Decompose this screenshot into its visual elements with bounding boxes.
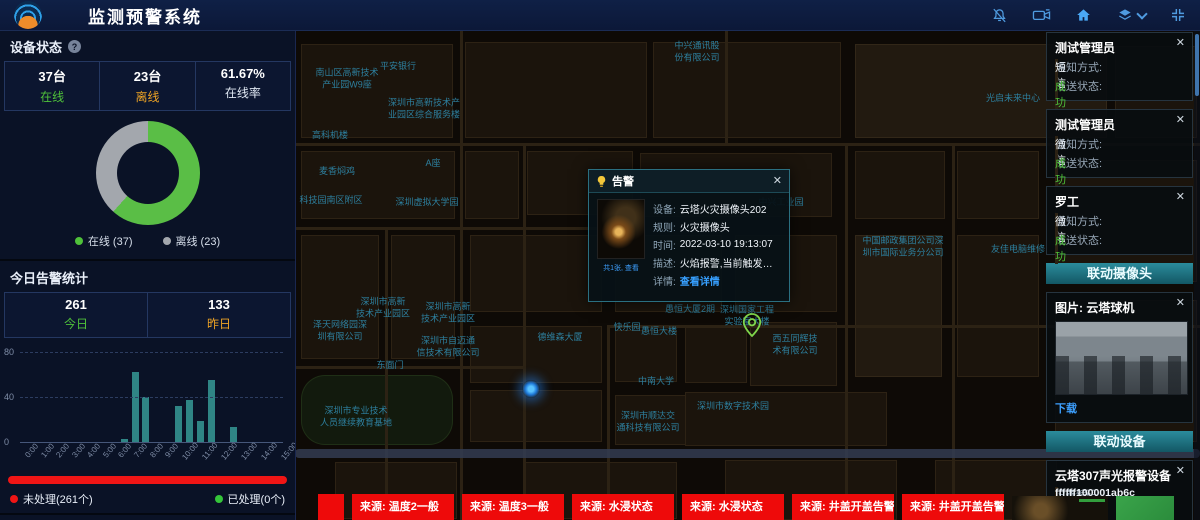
x-tick-label: 15:00 xyxy=(280,441,296,462)
notify-name: 测试管理员 xyxy=(1055,39,1184,56)
bar-plot xyxy=(20,352,283,443)
notify-method: 通知方式:短信 xyxy=(1055,59,1184,75)
map-label: 科技园南区附区 xyxy=(299,195,362,207)
map-building xyxy=(855,151,945,219)
map-label: 西五同辉技 术有限公司 xyxy=(772,333,817,356)
month-alarms-header: 本月告警统计 xyxy=(0,515,295,520)
video-camera-icon[interactable] xyxy=(1032,7,1051,23)
map-location-pin-icon[interactable] xyxy=(741,312,763,343)
notify-method: 通知方式:微信 xyxy=(1055,136,1184,152)
bar-xlabels: 0:001:002:003:004:005:006:007:008:009:00… xyxy=(20,445,283,454)
map-label: 德维森大厦 xyxy=(537,332,582,344)
home-icon[interactable] xyxy=(1075,7,1092,23)
x-tick-label: 2:00 xyxy=(54,442,71,460)
alarm-snapshot-thumbnail[interactable] xyxy=(1012,496,1108,520)
x-tick-label: 1:00 xyxy=(39,442,56,460)
view-detail-link[interactable]: 查看详情 xyxy=(680,273,720,288)
stat-today: 261 今日 xyxy=(5,293,147,337)
alarm-tile[interactable]: 来源: 井盖开盖告警 xyxy=(792,494,894,520)
layers-icon[interactable] xyxy=(1116,7,1146,23)
close-icon[interactable]: ✕ xyxy=(1176,38,1185,49)
legend-unprocessed: 未处理(261个) xyxy=(10,491,93,507)
alarm-ticker: 来源: 温度2一般来源: 温度3一般来源: 水浸状态来源: 水浸状态来源: 井盖… xyxy=(295,490,1200,520)
legend-processed: 已处理(0个) xyxy=(215,491,285,507)
unprocessed-progress-bar xyxy=(8,476,287,484)
download-link[interactable]: 下载 xyxy=(1055,400,1184,416)
chevron-down-icon xyxy=(1136,8,1147,19)
map-building xyxy=(957,151,1039,219)
x-tick-label: 4:00 xyxy=(86,442,103,460)
notification-card: ✕ 罗工 通知方式:微信 推送状态:成功 xyxy=(1046,186,1193,255)
device-status-title: 设备状态 xyxy=(10,37,62,56)
map-label: 愚恒大厦2期 xyxy=(665,304,715,316)
today-alarms-header: 今日告警统计 xyxy=(0,261,295,292)
map-road xyxy=(295,366,523,369)
map-label: 快乐园 xyxy=(613,322,640,334)
fullscreen-exit-icon[interactable] xyxy=(1170,7,1186,23)
map-label: A座 xyxy=(425,158,440,170)
map-label: 高科机楼 xyxy=(312,130,348,142)
x-tick-label: 10:00 xyxy=(180,441,200,462)
field-description: 描述:火焰报警,当前触发值为... xyxy=(653,253,781,271)
x-tick-label: 6:00 xyxy=(117,442,134,460)
x-tick-label: 5:00 xyxy=(101,442,118,460)
notification-card: ✕ 测试管理员 通知方式:短信 推送状态:成功 xyxy=(1046,32,1193,101)
camera-snapshot-image[interactable] xyxy=(1055,321,1188,395)
notify-status: 推送状态:成功 xyxy=(1055,78,1184,94)
alarm-tile[interactable]: 来源: 温度2一般 xyxy=(352,494,454,520)
notify-name: 测试管理员 xyxy=(1055,116,1184,133)
app-logo-icon xyxy=(14,1,42,29)
header: 监测预警系统 xyxy=(0,0,1200,31)
map-building xyxy=(685,392,887,446)
close-icon[interactable]: ✕ xyxy=(1176,298,1185,309)
close-icon[interactable]: ✕ xyxy=(1176,192,1185,203)
map-label: 深圳市专业技术 人员继续教育基地 xyxy=(320,405,392,428)
map-building xyxy=(301,44,453,138)
map-label: 光启未来中心 xyxy=(986,93,1040,105)
map-label: 中南大学 xyxy=(638,376,674,388)
field-rule: 规则:火灾摄像头 xyxy=(653,217,781,235)
x-tick-label: 3:00 xyxy=(70,442,87,460)
map-road xyxy=(952,143,955,520)
alert-image-col: 共1张, 查看 xyxy=(597,199,645,289)
map-label: 深圳市数字技术园 xyxy=(697,401,769,413)
linked-cameras-header[interactable]: 联动摄像头 xyxy=(1046,263,1193,284)
app-root: 监测预警系统 设备状态 ? xyxy=(0,0,1200,520)
scrollbar-thumb[interactable] xyxy=(1195,34,1199,96)
linked-devices-header[interactable]: 联动设备 xyxy=(1046,431,1193,452)
map-label: 深圳市高新 技术产业园区 xyxy=(421,301,475,324)
help-icon[interactable]: ? xyxy=(68,40,81,53)
alert-popup-title: 告警 xyxy=(612,173,768,189)
alert-image-thumbnail[interactable] xyxy=(597,199,645,259)
alarm-tiles: 来源: 温度2一般来源: 温度3一般来源: 水浸状态来源: 水浸状态来源: 井盖… xyxy=(318,494,1004,520)
device-status-header: 设备状态 ? xyxy=(0,30,295,61)
x-tick-label: 13:00 xyxy=(240,441,260,462)
map-label: 泽天网络园深 圳有限公司 xyxy=(313,319,367,342)
alert-image-caption[interactable]: 共1张, 查看 xyxy=(597,263,645,273)
alert-popup: 告警 ✕ 共1张, 查看 设备:云塔火灾摄像头202 规则:火灾摄像头 时间:2… xyxy=(588,169,790,302)
map-road xyxy=(523,143,526,520)
bell-off-icon[interactable] xyxy=(991,7,1008,24)
map-label: 深圳虚拟大学园 xyxy=(395,197,458,209)
map-building xyxy=(465,42,647,138)
stat-online: 37台 在线 xyxy=(5,62,99,110)
alarm-thumbnails xyxy=(1012,496,1174,520)
x-tick-label: 0:00 xyxy=(23,442,40,460)
notify-status: 推送状态:成功 xyxy=(1055,232,1184,248)
alarm-tile[interactable]: 来源: 水浸状态 xyxy=(682,494,784,520)
close-icon[interactable]: ✕ xyxy=(1176,466,1185,477)
map-label: 愚恒大楼 xyxy=(641,326,677,338)
left-panel: 设备状态 ? 37台 在线 23台 离线 61.67% 在线率 在线 (37) … xyxy=(0,30,296,520)
notify-status: 推送状态:成功 xyxy=(1055,155,1184,171)
map-building xyxy=(470,235,602,312)
stat-yesterday: 133 昨日 xyxy=(147,293,290,337)
close-icon[interactable]: ✕ xyxy=(1176,115,1185,126)
today-alarms-chart: 04080 0:001:002:003:004:005:006:007:008:… xyxy=(2,342,289,468)
map-label: 深圳市高新技术产 业园区综合服务楼 xyxy=(388,97,460,120)
x-tick-label: 8:00 xyxy=(148,442,165,460)
app-title: 监测预警系统 xyxy=(88,3,202,28)
device-donut-legend: 在线 (37) 离线 (23) xyxy=(0,233,295,249)
processed-legend: 未处理(261个) 已处理(0个) xyxy=(10,491,285,507)
alarm-tile[interactable]: 来源: 井盖开盖告警 xyxy=(902,494,1004,520)
alarm-tile-partial[interactable] xyxy=(318,494,344,520)
map-label: 中国邮政集团公司深 圳市国际业务分公司 xyxy=(862,235,943,258)
camera-card: ✕ 图片: 云塔球机 下载 xyxy=(1046,292,1193,423)
stat-offline: 23台 离线 xyxy=(99,62,194,110)
alert-fields: 设备:云塔火灾摄像头202 规则:火灾摄像头 时间:2022-03-10 19:… xyxy=(653,199,781,289)
today-alarms-stats: 261 今日 133 昨日 xyxy=(4,292,291,338)
map-road xyxy=(725,30,728,143)
notify-name: 罗工 xyxy=(1055,193,1184,210)
x-tick-label: 12:00 xyxy=(220,441,240,462)
field-time: 时间:2022-03-10 19:13:07 xyxy=(653,235,781,253)
notify-method: 通知方式:微信 xyxy=(1055,213,1184,229)
device-card-name: 云塔307声光报警设备 xyxy=(1055,467,1184,484)
map-label: 东面门 xyxy=(376,360,403,372)
x-tick-label: 9:00 xyxy=(163,442,180,460)
map-label: 友佳电脑维修 xyxy=(991,244,1045,256)
alarm-tile[interactable]: 来源: 水浸状态 xyxy=(572,494,674,520)
today-alarms-title: 今日告警统计 xyxy=(10,268,88,287)
alarm-snapshot-thumbnail[interactable] xyxy=(1116,496,1174,520)
map-label: 中兴通讯股 份有限公司 xyxy=(674,40,719,63)
map-label: 深圳市自迈通 信技术有限公司 xyxy=(416,335,479,358)
x-tick-label: 7:00 xyxy=(132,442,149,460)
header-icons xyxy=(991,0,1186,30)
alert-popup-body: 共1张, 查看 设备:云塔火灾摄像头202 规则:火灾摄像头 时间:2022-0… xyxy=(589,193,789,295)
map-label: 南山区高新技术 产业园W9座 xyxy=(315,67,378,90)
map-label: 深圳市高新 技术产业园区 xyxy=(356,296,410,319)
map-building xyxy=(957,235,1039,377)
close-icon[interactable]: ✕ xyxy=(773,176,782,187)
bulb-icon xyxy=(596,175,607,188)
map-road xyxy=(385,227,388,520)
map-building xyxy=(470,390,602,442)
map-building xyxy=(465,151,519,219)
map-cluster-marker[interactable] xyxy=(522,380,540,398)
x-tick-label: 14:00 xyxy=(260,441,280,462)
field-device: 设备:云塔火灾摄像头202 xyxy=(653,199,781,217)
y-tick-label: 0 xyxy=(4,437,9,447)
device-donut xyxy=(96,121,200,225)
map-road xyxy=(845,143,848,520)
y-tick-label: 40 xyxy=(4,392,14,402)
legend-offline: 离线 (23) xyxy=(163,233,221,249)
map-building xyxy=(685,326,747,383)
y-tick-label: 80 xyxy=(4,347,14,357)
map-road xyxy=(460,30,463,520)
map-label: 平安银行 xyxy=(380,61,416,73)
alert-popup-titlebar: 告警 ✕ xyxy=(589,170,789,193)
alarm-tile[interactable]: 来源: 温度3一般 xyxy=(462,494,564,520)
scrollbar-track xyxy=(1194,30,1200,520)
right-sidebar: ✕ 测试管理员 通知方式:短信 推送状态:成功 ✕ 测试管理员 通知方式:微信 … xyxy=(1046,32,1193,520)
map-label: 麦香焖鸡 xyxy=(319,166,355,178)
legend-online: 在线 (37) xyxy=(75,233,133,249)
stat-online-rate: 61.67% 在线率 xyxy=(195,62,290,110)
map-label: 深圳市顺达交 通科技有限公司 xyxy=(616,410,679,433)
camera-card-title: 图片: 云塔球机 xyxy=(1055,299,1184,316)
notification-card: ✕ 测试管理员 通知方式:微信 推送状态:成功 xyxy=(1046,109,1193,178)
field-detail: 详情:查看详情 xyxy=(653,271,781,289)
device-status-stats: 37台 在线 23台 离线 61.67% 在线率 xyxy=(4,61,291,111)
x-tick-label: 11:00 xyxy=(200,441,219,462)
